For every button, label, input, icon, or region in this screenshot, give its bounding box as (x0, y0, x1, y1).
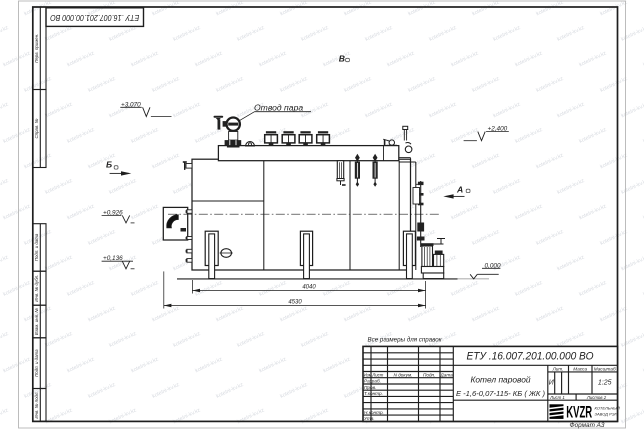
svg-text:kotelni-kv.kz: kotelni-kv.kz (535, 76, 564, 94)
svg-text:kotelni-kv.kz: kotelni-kv.kz (44, 101, 73, 119)
svg-text:КОТЕЛЬНЫЙ: КОТЕЛЬНЫЙ (595, 406, 620, 411)
svg-text:kotelni-kv.kz: kotelni-kv.kz (258, 280, 287, 298)
svg-text:kotelni-kv.kz: kotelni-kv.kz (620, 254, 644, 272)
svg-text:kotelni-kv.kz: kotelni-kv.kz (578, 203, 607, 221)
svg-text:kotelni-kv.kz: kotelni-kv.kz (599, 152, 628, 170)
svg-text:kotelni-kv.kz: kotelni-kv.kz (407, 0, 436, 17)
svg-text:kotelni-kv.kz: kotelni-kv.kz (322, 50, 351, 68)
svg-text:kotelni-kv.kz: kotelni-kv.kz (0, 178, 10, 196)
svg-text:kotelni-kv.kz: kotelni-kv.kz (471, 152, 500, 170)
svg-text:kotelni-kv.kz: kotelni-kv.kz (386, 280, 415, 298)
svg-text:kotelni-kv.kz: kotelni-kv.kz (514, 280, 543, 298)
svg-text:kotelni-kv.kz: kotelni-kv.kz (2, 356, 31, 374)
svg-text:kotelni-kv.kz: kotelni-kv.kz (599, 305, 628, 323)
svg-text:kotelni-kv.kz: kotelni-kv.kz (130, 280, 159, 298)
svg-text:kotelni-kv.kz: kotelni-kv.kz (215, 76, 244, 94)
svg-text:ЕТУ .16.007.201.00.000 ВО: ЕТУ .16.007.201.00.000 ВО (50, 13, 139, 22)
svg-text:KVZR: KVZR (566, 402, 592, 421)
svg-text:kotelni-kv.kz: kotelni-kv.kz (172, 25, 201, 43)
svg-text:kotelni-kv.kz: kotelni-kv.kz (151, 152, 180, 170)
svg-text:kotelni-kv.kz: kotelni-kv.kz (535, 305, 564, 323)
svg-text:Масса: Масса (573, 366, 587, 371)
svg-text:kotelni-kv.kz: kotelni-kv.kz (556, 178, 585, 196)
svg-text:kotelni-kv.kz: kotelni-kv.kz (151, 305, 180, 323)
svg-text:kotelni-kv.kz: kotelni-kv.kz (450, 127, 479, 145)
svg-text:kotelni-kv.kz: kotelni-kv.kz (258, 356, 287, 374)
svg-text:kotelni-kv.kz: kotelni-kv.kz (471, 229, 500, 247)
svg-text:kotelni-kv.kz: kotelni-kv.kz (66, 50, 95, 68)
svg-text:kotelni-kv.kz: kotelni-kv.kz (279, 76, 308, 94)
svg-text:Листов 2: Листов 2 (586, 395, 607, 400)
svg-text:kotelni-kv.kz: kotelni-kv.kz (556, 101, 585, 119)
svg-text:1:25: 1:25 (598, 380, 612, 387)
svg-text:kotelni-kv.kz: kotelni-kv.kz (279, 0, 308, 17)
svg-text:kotelni-kv.kz: kotelni-kv.kz (364, 25, 393, 43)
svg-text:kotelni-kv.kz: kotelni-kv.kz (258, 50, 287, 68)
svg-text:kotelni-kv.kz: kotelni-kv.kz (492, 25, 521, 43)
svg-text:kotelni-kv.kz: kotelni-kv.kz (450, 203, 479, 221)
svg-text:kotelni-kv.kz: kotelni-kv.kz (279, 382, 308, 400)
svg-text:Отвод пара: Отвод пара (254, 102, 303, 112)
svg-text:kotelni-kv.kz: kotelni-kv.kz (620, 101, 644, 119)
svg-text:kotelni-kv.kz: kotelni-kv.kz (44, 178, 73, 196)
svg-text:kotelni-kv.kz: kotelni-kv.kz (87, 152, 116, 170)
svg-text:А: А (456, 184, 463, 194)
svg-text:kotelni-kv.kz: kotelni-kv.kz (0, 331, 10, 349)
svg-text:kotelni-kv.kz: kotelni-kv.kz (556, 25, 585, 43)
svg-text:ЕТУ .16.007.201.00.000 ВО: ЕТУ .16.007.201.00.000 ВО (467, 351, 594, 363)
svg-text:kotelni-kv.kz: kotelni-kv.kz (87, 382, 116, 400)
svg-text:kotelni-kv.kz: kotelni-kv.kz (428, 101, 457, 119)
svg-text:kotelni-kv.kz: kotelni-kv.kz (578, 127, 607, 145)
svg-text:kotelni-kv.kz: kotelni-kv.kz (556, 254, 585, 272)
svg-text:kotelni-kv.kz: kotelni-kv.kz (44, 407, 73, 425)
svg-text:Лит.: Лит. (552, 366, 564, 371)
svg-text:kotelni-kv.kz: kotelni-kv.kz (130, 203, 159, 221)
svg-text:N докум.: N докум. (394, 372, 413, 377)
svg-text:kotelni-kv.kz: kotelni-kv.kz (66, 203, 95, 221)
svg-text:Инв. № дубл.: Инв. № дубл. (34, 275, 39, 302)
svg-text:kotelni-kv.kz: kotelni-kv.kz (578, 50, 607, 68)
svg-text:Дата: Дата (439, 372, 453, 377)
svg-text:kotelni-kv.kz: kotelni-kv.kz (2, 280, 31, 298)
svg-text:4530: 4530 (288, 300, 302, 306)
svg-text:kotelni-kv.kz: kotelni-kv.kz (343, 0, 372, 17)
svg-text:kotelni-kv.kz: kotelni-kv.kz (300, 407, 329, 425)
svg-text:kotelni-kv.kz: kotelni-kv.kz (450, 50, 479, 68)
svg-text:kotelni-kv.kz: kotelni-kv.kz (535, 0, 564, 17)
svg-text:kotelni-kv.kz: kotelni-kv.kz (215, 0, 244, 17)
svg-text:Лист: Лист (371, 372, 383, 377)
svg-text:kotelni-kv.kz: kotelni-kv.kz (364, 101, 393, 119)
svg-text:kotelni-kv.kz: kotelni-kv.kz (300, 331, 329, 349)
svg-text:Б: Б (106, 160, 112, 170)
svg-text:kotelni-kv.kz: kotelni-kv.kz (407, 152, 436, 170)
svg-text:kotelni-kv.kz: kotelni-kv.kz (407, 305, 436, 323)
svg-text:Разраб.: Разраб. (364, 379, 381, 384)
svg-text:kotelni-kv.kz: kotelni-kv.kz (620, 178, 644, 196)
svg-text:kotelni-kv.kz: kotelni-kv.kz (300, 25, 329, 43)
svg-text:kotelni-kv.kz: kotelni-kv.kz (300, 101, 329, 119)
svg-text:kotelni-kv.kz: kotelni-kv.kz (514, 50, 543, 68)
svg-text:kotelni-kv.kz: kotelni-kv.kz (343, 76, 372, 94)
svg-text:kotelni-kv.kz: kotelni-kv.kz (599, 76, 628, 94)
svg-text:kotelni-kv.kz: kotelni-kv.kz (0, 254, 10, 272)
svg-text:kotelni-kv.kz: kotelni-kv.kz (620, 25, 644, 43)
svg-text:kotelni-kv.kz: kotelni-kv.kz (578, 280, 607, 298)
svg-text:kotelni-kv.kz: kotelni-kv.kz (471, 0, 500, 17)
svg-text:kotelni-kv.kz: kotelni-kv.kz (535, 152, 564, 170)
svg-text:kotelni-kv.kz: kotelni-kv.kz (343, 305, 372, 323)
svg-text:kotelni-kv.kz: kotelni-kv.kz (87, 76, 116, 94)
svg-text:kotelni-kv.kz: kotelni-kv.kz (2, 203, 31, 221)
svg-text:Масштаб: Масштаб (594, 366, 616, 371)
svg-text:kotelni-kv.kz: kotelni-kv.kz (236, 407, 265, 425)
svg-text:kotelni-kv.kz: kotelni-kv.kz (108, 331, 137, 349)
svg-text:kotelni-kv.kz: kotelni-kv.kz (620, 331, 644, 349)
svg-text:Перв. примен.: Перв. примен. (34, 34, 39, 63)
svg-text:kotelni-kv.kz: kotelni-kv.kz (66, 280, 95, 298)
svg-text:kotelni-kv.kz: kotelni-kv.kz (2, 50, 31, 68)
svg-text:Котел паровой: Котел паровой (470, 375, 530, 385)
svg-text:kotelni-kv.kz: kotelni-kv.kz (386, 127, 415, 145)
svg-text:kotelni-kv.kz: kotelni-kv.kz (215, 382, 244, 400)
svg-text:kotelni-kv.kz: kotelni-kv.kz (87, 305, 116, 323)
svg-text:kotelni-kv.kz: kotelni-kv.kz (236, 25, 265, 43)
svg-text:kotelni-kv.kz: kotelni-kv.kz (535, 229, 564, 247)
svg-text:kotelni-kv.kz: kotelni-kv.kz (44, 331, 73, 349)
svg-text:kotelni-kv.kz: kotelni-kv.kz (130, 356, 159, 374)
svg-text:Утв.: Утв. (364, 416, 375, 421)
svg-text:Подп.: Подп. (423, 372, 435, 377)
svg-text:kotelni-kv.kz: kotelni-kv.kz (471, 305, 500, 323)
svg-text:4040: 4040 (302, 285, 316, 291)
svg-text:kotelni-kv.kz: kotelni-kv.kz (279, 305, 308, 323)
svg-text:Н.контр.: Н.контр. (364, 410, 384, 415)
svg-text:kotelni-kv.kz: kotelni-kv.kz (151, 382, 180, 400)
svg-text:kotelni-kv.kz: kotelni-kv.kz (0, 101, 10, 119)
svg-text:kotelni-kv.kz: kotelni-kv.kz (428, 178, 457, 196)
svg-text:Справ. №: Справ. № (34, 118, 39, 138)
svg-text:kotelni-kv.kz: kotelni-kv.kz (172, 407, 201, 425)
svg-text:kotelni-kv.kz: kotelni-kv.kz (44, 254, 73, 272)
svg-text:kotelni-kv.kz: kotelni-kv.kz (2, 127, 31, 145)
svg-text:kotelni-kv.kz: kotelni-kv.kz (66, 127, 95, 145)
svg-text:kotelni-kv.kz: kotelni-kv.kz (428, 25, 457, 43)
svg-text:kotelni-kv.kz: kotelni-kv.kz (236, 331, 265, 349)
svg-text:kotelni-kv.kz: kotelni-kv.kz (322, 356, 351, 374)
svg-text:kotelni-kv.kz: kotelni-kv.kz (599, 229, 628, 247)
svg-text:kotelni-kv.kz: kotelni-kv.kz (172, 331, 201, 349)
svg-text:kotelni-kv.kz: kotelni-kv.kz (23, 76, 52, 94)
svg-text:kotelni-kv.kz: kotelni-kv.kz (407, 76, 436, 94)
svg-text:ЗАВОД РЭП: ЗАВОД РЭП (595, 412, 618, 417)
svg-text:kotelni-kv.kz: kotelni-kv.kz (66, 356, 95, 374)
svg-text:kotelni-kv.kz: kotelni-kv.kz (0, 25, 10, 43)
svg-text:kotelni-kv.kz: kotelni-kv.kz (23, 0, 52, 17)
svg-text:kotelni-kv.kz: kotelni-kv.kz (194, 356, 223, 374)
svg-text:Все размеры для справок: Все размеры для справок (368, 336, 443, 343)
svg-text:В: В (339, 54, 345, 64)
svg-text:kotelni-kv.kz: kotelni-kv.kz (322, 280, 351, 298)
svg-text:Инв. № подл.: Инв. № подл. (34, 391, 39, 418)
svg-text:Формат А3: Формат А3 (570, 422, 605, 429)
svg-text:kotelni-kv.kz: kotelni-kv.kz (514, 127, 543, 145)
svg-text:kotelni-kv.kz: kotelni-kv.kz (620, 407, 644, 425)
svg-text:kotelni-kv.kz: kotelni-kv.kz (492, 101, 521, 119)
svg-text:kotelni-kv.kz: kotelni-kv.kz (108, 25, 137, 43)
svg-text:Подп. и дата: Подп. и дата (34, 349, 39, 377)
svg-text:Подп. и дата: Подп. и дата (34, 233, 39, 261)
svg-text:kotelni-kv.kz: kotelni-kv.kz (130, 50, 159, 68)
svg-text:kotelni-kv.kz: kotelni-kv.kz (0, 407, 10, 425)
svg-text:kotelni-kv.kz: kotelni-kv.kz (514, 203, 543, 221)
svg-text:kotelni-kv.kz: kotelni-kv.kz (151, 76, 180, 94)
svg-text:kotelni-kv.kz: kotelni-kv.kz (108, 178, 137, 196)
svg-text:kotelni-kv.kz: kotelni-kv.kz (172, 101, 201, 119)
svg-text:kotelni-kv.kz: kotelni-kv.kz (215, 305, 244, 323)
svg-text:kotelni-kv.kz: kotelni-kv.kz (44, 25, 73, 43)
svg-text:kotelni-kv.kz: kotelni-kv.kz (194, 280, 223, 298)
svg-text:kotelni-kv.kz: kotelni-kv.kz (386, 50, 415, 68)
svg-text:Пров.: Пров. (364, 385, 376, 390)
svg-text:kotelni-kv.kz: kotelni-kv.kz (194, 50, 223, 68)
svg-text:Лист 1: Лист 1 (549, 395, 565, 400)
svg-text:kotelni-kv.kz: kotelni-kv.kz (130, 127, 159, 145)
svg-text:kotelni-kv.kz: kotelni-kv.kz (450, 280, 479, 298)
svg-text:Т.контр.: Т.контр. (364, 391, 383, 396)
svg-text:Взам. инв. №: Взам. инв. № (34, 308, 39, 335)
svg-text:kotelni-kv.kz: kotelni-kv.kz (108, 407, 137, 425)
svg-text:kotelni-kv.kz: kotelni-kv.kz (471, 76, 500, 94)
svg-text:kotelni-kv.kz: kotelni-kv.kz (151, 0, 180, 17)
svg-text:kotelni-kv.kz: kotelni-kv.kz (599, 0, 628, 17)
svg-text:Е -1,6-0,07-115- КБ ( ЖК ): Е -1,6-0,07-115- КБ ( ЖК ) (456, 389, 546, 398)
svg-text:kotelni-kv.kz: kotelni-kv.kz (492, 178, 521, 196)
svg-text:kotelni-kv.kz: kotelni-kv.kz (87, 229, 116, 247)
